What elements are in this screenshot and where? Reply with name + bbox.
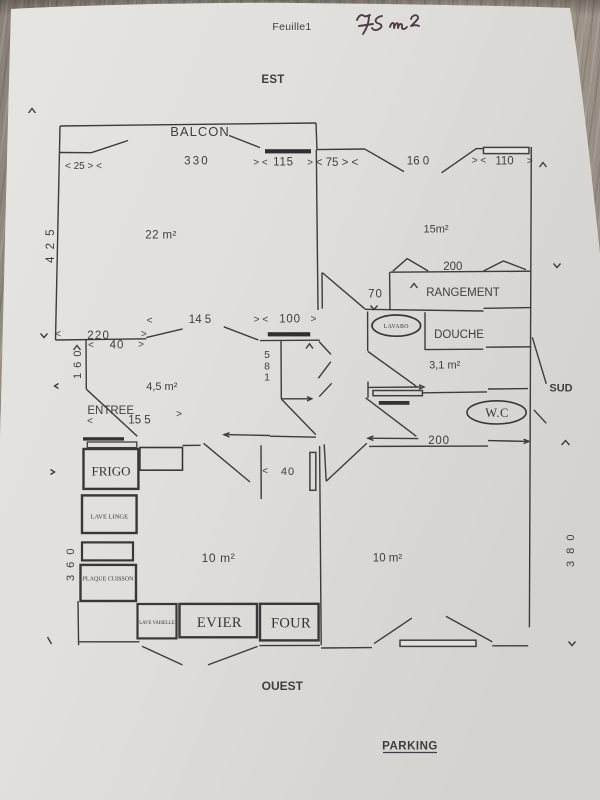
svg-text:110: 110	[495, 156, 513, 168]
svg-text:4,5 m²: 4,5 m²	[146, 381, 178, 393]
svg-text:40: 40	[281, 466, 295, 478]
svg-text:RANGEMENT: RANGEMENT	[426, 287, 499, 299]
svg-text:>: >	[138, 340, 144, 351]
svg-text:330: 330	[184, 156, 210, 168]
svg-text:> <: > <	[253, 158, 268, 169]
svg-text:<: <	[88, 340, 94, 351]
svg-text:>: >	[176, 409, 182, 420]
svg-text:40: 40	[110, 340, 125, 352]
svg-text:200: 200	[428, 435, 450, 447]
svg-text:Feuille1: Feuille1	[272, 21, 311, 33]
svg-text:22 m²: 22 m²	[145, 230, 176, 242]
svg-text:14 5: 14 5	[189, 314, 211, 326]
svg-text:200: 200	[443, 261, 462, 273]
svg-text:> <: > <	[472, 156, 487, 167]
svg-text:DOUCHE: DOUCHE	[434, 329, 484, 341]
svg-text:< 75 > <: < 75 > <	[316, 157, 359, 169]
svg-text:1 6 0: 1 6 0	[72, 350, 84, 379]
svg-text:1: 1	[264, 372, 270, 384]
svg-text:115: 115	[273, 157, 294, 169]
svg-text:EST: EST	[261, 74, 284, 86]
svg-text:LAVE VAISELLE: LAVE VAISELLE	[139, 621, 175, 626]
svg-text:W.C: W.C	[485, 406, 509, 420]
svg-text:70: 70	[368, 289, 383, 301]
svg-text:< 25 > <: < 25 > <	[65, 161, 102, 172]
svg-text:3,1 m²: 3,1 m²	[429, 360, 461, 372]
svg-text:<: <	[87, 416, 93, 427]
svg-text:15 5: 15 5	[128, 415, 150, 427]
svg-text:100: 100	[279, 314, 301, 326]
svg-text:<: <	[55, 329, 61, 340]
svg-text:OUEST: OUEST	[262, 679, 304, 693]
svg-text:FOUR: FOUR	[271, 616, 311, 632]
svg-text:>: >	[307, 158, 313, 169]
svg-text:3 6 0: 3 6 0	[65, 547, 77, 581]
svg-text:10 m²: 10 m²	[202, 551, 236, 565]
svg-text:LAVABO: LAVABO	[384, 324, 409, 330]
svg-text:5: 5	[264, 349, 270, 361]
svg-text:>: >	[141, 329, 147, 340]
svg-text:3 8 0: 3 8 0	[565, 533, 577, 567]
svg-text:16 0: 16 0	[407, 156, 429, 168]
svg-text:> <: > <	[254, 315, 269, 326]
svg-text:BALCON: BALCON	[170, 124, 229, 139]
svg-text:10 m²: 10 m²	[373, 553, 403, 565]
svg-text:<: <	[262, 466, 268, 477]
svg-text:FRIGO: FRIGO	[91, 464, 130, 479]
svg-text:15m²: 15m²	[423, 224, 448, 236]
svg-text:LAVE LINGE: LAVE LINGE	[90, 514, 128, 521]
svg-text:4 2 5: 4 2 5	[45, 227, 57, 263]
svg-text:ENTREE: ENTREE	[87, 405, 134, 417]
svg-text:PARKING: PARKING	[382, 741, 438, 753]
svg-text:<: <	[147, 316, 153, 327]
svg-text:>: >	[527, 156, 533, 167]
svg-text:SUD: SUD	[549, 383, 572, 395]
svg-text:PLAQUE CUISSON: PLAQUE CUISSON	[83, 577, 135, 583]
svg-text:>: >	[311, 314, 317, 325]
svg-text:EVIER: EVIER	[197, 615, 242, 631]
